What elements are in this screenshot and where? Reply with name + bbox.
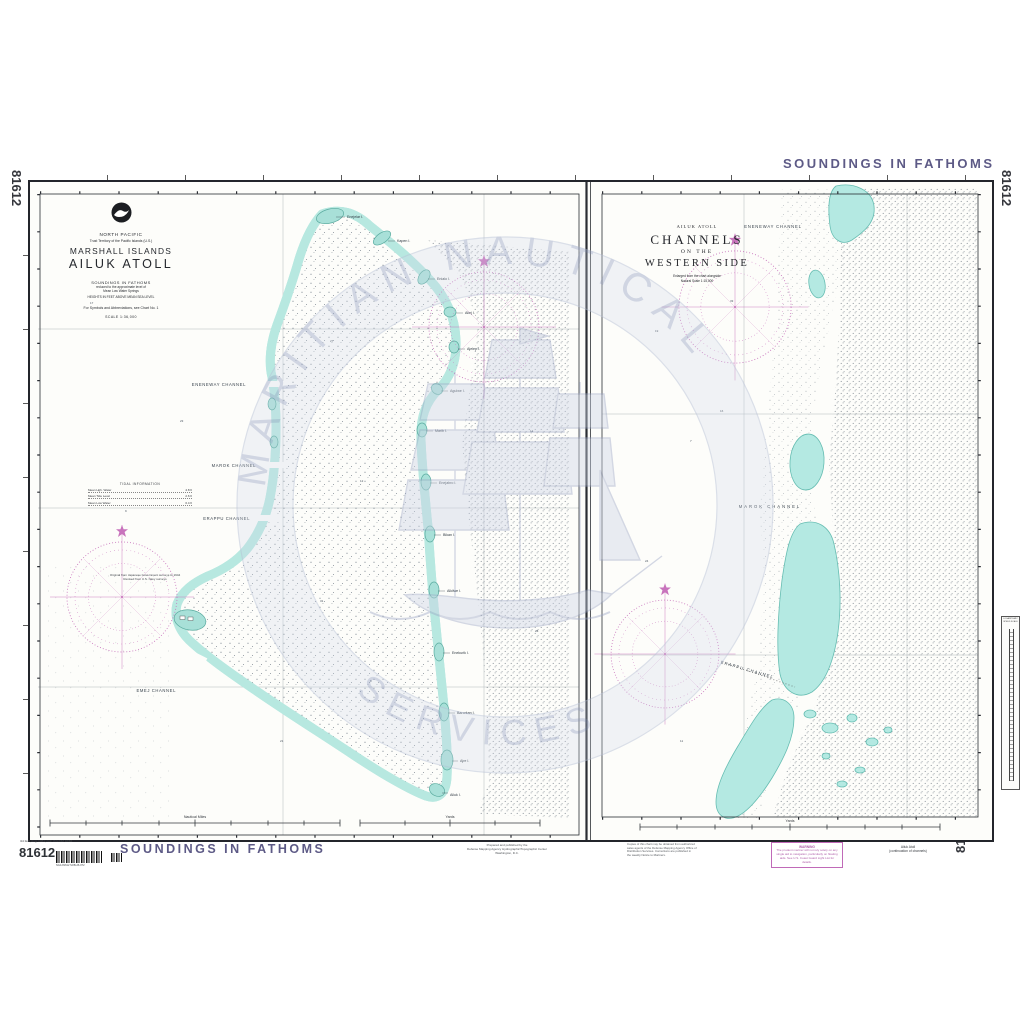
region-label: NORTH PACIFIC: [46, 232, 196, 238]
chart-number-top-left: 81612: [9, 170, 24, 206]
territory-label: Trust Territory of the Pacific Islands (…: [46, 239, 196, 243]
svg-text:Enekurik I.: Enekurik I.: [452, 651, 469, 655]
warning-box: WARNING The prudent mariner will not rel…: [771, 842, 843, 868]
inset-atoll-label: AILUK ATOLL: [622, 224, 772, 230]
svg-text:Yards: Yards: [445, 815, 454, 819]
chart-product-page: SOUNDINGS IN FATHOMS 81612 81612 81612: [0, 0, 1024, 1024]
svg-text:Barorkan I.: Barorkan I.: [457, 711, 475, 715]
svg-text:11: 11: [680, 739, 683, 743]
soundings-title-top: SOUNDINGS IN FATHOMS: [783, 156, 995, 171]
soundings-title-bottom: SOUNDINGS IN FATHOMS: [120, 842, 325, 856]
inset-title-2: ON THE: [622, 249, 772, 256]
left-title-block: NORTH PACIFIC Trust Territory of the Pac…: [46, 202, 196, 319]
log-scale-title: LOGARITHMIC SPEED SCALE: [1002, 618, 1019, 623]
barcode-text: NGA 81612 SOB-26-072: [56, 864, 85, 867]
tidal-table-title: TIDAL INFORMATION: [88, 482, 192, 486]
island-group-title: MARSHALL ISLANDS: [46, 246, 196, 257]
nautical-chart: ENENEWAY CHANNEL MAROK CHANNEL ERAPPU CH…: [28, 180, 994, 842]
reproduction-note: Copies of this chart may be obtained fro…: [627, 843, 719, 858]
svg-text:24: 24: [645, 559, 649, 563]
svg-text:Enejelar I.: Enejelar I.: [347, 215, 363, 219]
svg-text:Ajre I.: Ajre I.: [460, 759, 469, 763]
svg-text:Agulwe I.: Agulwe I.: [450, 389, 465, 393]
log-speed-scale: LOGARITHMIC SPEED SCALE: [1001, 616, 1020, 790]
svg-text:Kapen I.: Kapen I.: [397, 239, 410, 243]
ailuk-atoll: [173, 206, 459, 799]
chart-title: AILUK ATOLL: [46, 257, 196, 273]
svg-text:27: 27: [330, 339, 334, 343]
svg-text:19: 19: [655, 329, 659, 333]
channel-label: ERAPPU CHANNEL: [203, 516, 250, 521]
inset-note-1: Enlarged from the chart alongside: [622, 274, 772, 278]
channel-label: ENENEWAY CHANNEL: [192, 382, 246, 387]
inset-title-1: CHANNELS: [622, 232, 772, 248]
tidal-row: Mean Tide Level 2.6 ft: [88, 494, 192, 499]
svg-text:26: 26: [535, 629, 539, 633]
svg-text:7: 7: [690, 439, 692, 443]
chart-number-top-right: 81612: [999, 170, 1014, 206]
svg-text:Ajelep I.: Ajelep I.: [467, 347, 480, 351]
svg-text:23: 23: [180, 419, 184, 423]
log-scale-rule: [1009, 629, 1014, 781]
warning-body: The prudent mariner will not rely solely…: [775, 849, 839, 865]
svg-text:Bikan I.: Bikan I.: [443, 533, 455, 537]
source-note: Original from Japanese Government survey…: [85, 574, 205, 582]
svg-text:MAROK CHANNEL: MAROK CHANNEL: [739, 504, 802, 509]
svg-text:Marib I.: Marib I.: [435, 429, 447, 433]
channel-label: EMEJ CHANNEL: [136, 688, 176, 693]
svg-text:21: 21: [280, 739, 284, 743]
svg-text:Enialo I.: Enialo I.: [437, 277, 450, 281]
svg-text:Nautical Miles: Nautical Miles: [184, 815, 207, 819]
svg-text:9: 9: [125, 509, 127, 513]
datum-note-2: Mean Low Water Springs: [46, 289, 196, 293]
svg-text:Ailuk I.: Ailuk I.: [450, 793, 461, 797]
svg-text:Alkilwe I.: Alkilwe I.: [447, 589, 461, 593]
inset-note-2: Natural Scale 1:15,000: [622, 279, 772, 283]
edition-note: 3rd Ed., Aug. 1984; corr. thru NM 32/84: [20, 839, 72, 843]
soundings-right: 19 7 24 11 33 16: [645, 299, 734, 743]
tidal-row: Mean Hgh. Water 4.8 ft: [88, 488, 192, 493]
right-title-block: AILUK ATOLL CHANNELS ON THE WESTERN SIDE…: [622, 224, 772, 283]
right-scale-bar: Yards: [640, 819, 940, 831]
svg-text:14: 14: [530, 429, 534, 433]
svg-text:16: 16: [720, 409, 724, 413]
svg-text:31: 31: [320, 599, 324, 603]
symbols-note: For Symbols and Abbreviations, see Chart…: [46, 306, 196, 310]
continuation-note: Ailuk Atoll (continuation of channels): [878, 845, 938, 853]
svg-text:Enejabro I.: Enejabro I.: [439, 481, 456, 485]
channel-label: MAROK CHANNEL: [212, 463, 256, 468]
tidal-table: TIDAL INFORMATION Mean Hgh. Water 4.8 ft…: [88, 482, 192, 506]
chart-number-bottom-left: 81612: [19, 845, 55, 860]
publisher-note: Prepared and published by the Defense Ma…: [452, 844, 562, 855]
heights-note: HEIGHTS IN FEET ABOVE MEAN SEA LEVEL: [46, 295, 196, 299]
tidal-row: Mean Low Water 0.4 ft: [88, 501, 192, 506]
agency-emblem-icon: [111, 202, 132, 223]
svg-text:Yards: Yards: [785, 819, 794, 823]
scale-note: SCALE 1:36,000: [46, 315, 196, 319]
compass-rose-right-bottom: [594, 583, 735, 724]
svg-text:12: 12: [360, 479, 364, 483]
inset-title-3: WESTERN SIDE: [622, 257, 772, 270]
barcode: [56, 851, 102, 863]
